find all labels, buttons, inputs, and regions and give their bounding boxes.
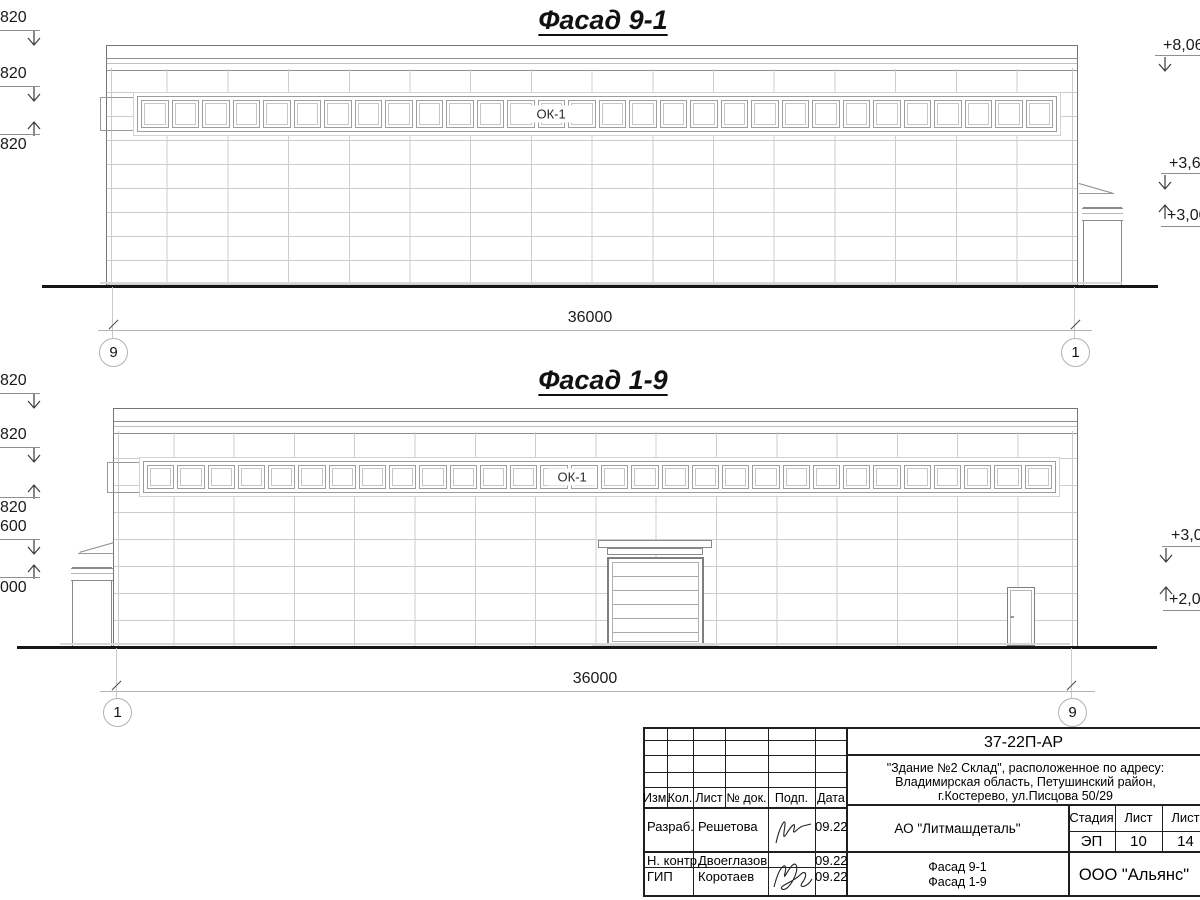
ground-line [42, 285, 1158, 288]
window-cell [965, 100, 993, 128]
tb-sheet-value: 10 [1115, 833, 1162, 850]
window-cell [601, 465, 628, 489]
elevation-arrow-down-icon [1158, 175, 1172, 191]
tb-name: Решетова [698, 820, 758, 835]
signature-scribble [770, 811, 815, 851]
signature-scribble [768, 853, 815, 895]
tb-col-list: Лист [693, 791, 725, 805]
annex-band [1082, 208, 1123, 221]
window-cell [629, 100, 657, 128]
elevation-mark-value: +3,0 [1171, 527, 1200, 545]
annex-canopy-base [1079, 193, 1114, 194]
dimension-line [100, 691, 1095, 692]
elevation-mark-shelf [1162, 546, 1200, 547]
base-apron-line [60, 643, 1070, 645]
window-cell [294, 100, 322, 128]
tb-address-line2: Владимирская область, Петушинский район, [853, 775, 1198, 789]
tb-sheet-name-line2: Фасад 1-9 [847, 875, 1068, 889]
window-cell [873, 465, 900, 489]
tb-line [643, 740, 847, 741]
band-cap-line [107, 462, 143, 463]
window-cell [480, 465, 507, 489]
tb-line [643, 755, 847, 756]
elevation-mark-value: +3,00 [1167, 207, 1200, 225]
tb-role: Н. контр. [647, 854, 701, 869]
window-band-label: ОК-1 [526, 106, 575, 123]
elevation-mark-value: 600 [0, 518, 27, 536]
facade-1-9-building [113, 408, 1078, 648]
elevation-mark-shelf [1161, 173, 1200, 174]
dimension-value: 36000 [490, 309, 690, 327]
window-cell [995, 100, 1023, 128]
window-cell [238, 465, 265, 489]
annex-canopy-slope [79, 542, 114, 553]
elevation-mark-shelf [0, 497, 40, 498]
drawing-canvas: Фасад 9-1 ОК-1 36000 9 1 820 820 820 +8, [0, 0, 1200, 900]
tb-sheet-name-line1: Фасад 9-1 [847, 860, 1068, 874]
window-cell [208, 465, 235, 489]
title-block: Изм. Кол. Лист № док. Подп. Дата Разраб.… [643, 727, 1200, 897]
tb-line [847, 754, 1200, 756]
window-cell [722, 465, 749, 489]
window-cell [141, 100, 169, 128]
base-apron-line [100, 282, 1122, 284]
window-band: ОК-1 [137, 96, 1057, 132]
gate-slats [612, 562, 699, 642]
elevation-mark-shelf [0, 577, 40, 578]
window-cell [783, 465, 810, 489]
tb-col-izm: Изм. [643, 791, 667, 805]
elevation-mark-value: 000 [0, 579, 27, 597]
tb-line [1068, 831, 1200, 832]
window-cell [721, 100, 749, 128]
tb-address-line1: "Здание №2 Склад", расположенное по адре… [853, 761, 1198, 775]
window-cell [843, 465, 870, 489]
gate-canopy-lower [607, 548, 703, 555]
tb-border [643, 727, 645, 897]
band-cap-line [107, 462, 108, 493]
window-cell [416, 100, 444, 128]
window-cell [692, 465, 719, 489]
window-cell [994, 465, 1021, 489]
window-cell [631, 465, 658, 489]
window-cell [477, 100, 505, 128]
window-cell [419, 465, 446, 489]
window-cell [355, 100, 383, 128]
annex-box [1083, 207, 1122, 287]
window-row [147, 465, 1052, 489]
elevation-arrow-down-icon [27, 448, 41, 464]
window-cell [752, 465, 779, 489]
elevation-mark-value: 820 [0, 136, 27, 154]
door-handle [1010, 616, 1014, 618]
window-cell [843, 100, 871, 128]
window-cell [263, 100, 291, 128]
elevation-mark-value: 820 [0, 426, 27, 444]
window-cell [964, 465, 991, 489]
window-cell [904, 100, 932, 128]
tb-date: 09.22 [815, 854, 847, 869]
annex-band [71, 568, 113, 581]
window-cell [662, 465, 689, 489]
window-cell [329, 465, 356, 489]
window-row [141, 100, 1053, 128]
elevation-mark-value: 820 [0, 9, 27, 27]
tb-client: АО "Литмашдеталь" [847, 821, 1068, 837]
window-cell [324, 100, 352, 128]
window-cell [177, 465, 204, 489]
window-cell [660, 100, 688, 128]
elevation-mark-value: 820 [0, 372, 27, 390]
tb-border [643, 727, 1200, 729]
window-cell [172, 100, 200, 128]
tb-date: 09.22 [815, 870, 847, 885]
elevation-mark-value: +3,60 [1169, 155, 1200, 173]
grid-axis-bubble: 1 [1061, 338, 1090, 367]
elevation-mark-shelf [1155, 55, 1200, 56]
tb-border [643, 895, 1200, 897]
elevation-arrow-down-icon [1158, 57, 1172, 73]
tb-sheets-value: 14 [1162, 833, 1200, 850]
window-cell [934, 465, 961, 489]
dimension-tick [109, 320, 119, 330]
dimension-line [98, 330, 1092, 331]
dimension-tick [1071, 320, 1081, 330]
window-cell [813, 465, 840, 489]
tb-stage-label: Стадия [1068, 811, 1115, 826]
tb-doc-code: 37-22П-АР [847, 734, 1200, 752]
window-cell [450, 465, 477, 489]
tb-date: 09.22 [815, 820, 847, 835]
band-cap-line [107, 492, 143, 493]
window-cell [510, 465, 537, 489]
tb-line [643, 787, 847, 788]
tb-role: Разраб. [647, 820, 694, 835]
gate-canopy-upper [598, 540, 712, 548]
window-cell [751, 100, 779, 128]
window-cell [385, 100, 413, 128]
elevation-mark-value: 820 [0, 499, 27, 517]
tb-line [693, 727, 694, 897]
window-band-label: ОК-1 [548, 469, 597, 486]
elevation-arrow-down-icon [27, 540, 41, 556]
elevation-mark-value: +2,00 [1169, 591, 1200, 609]
tb-line [643, 772, 847, 773]
tb-col-podp: Подп. [768, 791, 815, 805]
tb-col-data: Дата [815, 791, 847, 805]
window-cell [599, 100, 627, 128]
sectional-gate [607, 557, 704, 646]
tb-address-line3: г.Костерево, ул.Писцова 50/29 [853, 789, 1198, 803]
tb-line [643, 807, 847, 809]
window-band: ОК-1 [143, 461, 1056, 493]
window-cell [202, 100, 230, 128]
elevation-arrow-down-icon [1159, 548, 1173, 564]
window-cell [782, 100, 810, 128]
elevation-mark-shelf [0, 134, 40, 135]
window-cell [389, 465, 416, 489]
elevation-arrow-down-icon [27, 394, 41, 410]
grid-axis-bubble: 1 [103, 698, 132, 727]
annex-canopy-base [78, 553, 114, 554]
window-cell [1025, 465, 1052, 489]
annex-box [72, 567, 112, 648]
facade-1-9-title: Фасад 1-9 [453, 365, 753, 396]
grid-axis-bubble: 9 [99, 338, 128, 367]
facade-9-1-building [106, 45, 1078, 287]
band-cap-line [100, 130, 137, 131]
tb-role: ГИП [647, 870, 673, 885]
window-cell [904, 465, 931, 489]
window-cell [359, 465, 386, 489]
tb-name: Коротаев [698, 870, 754, 885]
window-cell [298, 465, 325, 489]
tb-col-ndok: № док. [725, 791, 768, 805]
tb-name: Двоеглазов [698, 854, 767, 869]
tb-company: ООО "Альянс" [1068, 866, 1200, 885]
window-cell [934, 100, 962, 128]
tb-stage-value: ЭП [1068, 833, 1115, 850]
ground-line [17, 646, 1157, 649]
elevation-mark-shelf [1163, 610, 1200, 611]
elevation-mark-shelf [1161, 226, 1200, 227]
window-cell [446, 100, 474, 128]
entry-door [1007, 587, 1035, 646]
window-cell [268, 465, 295, 489]
window-cell [873, 100, 901, 128]
tb-sheet-label: Лист [1115, 811, 1162, 826]
elevation-mark-value: +8,06 [1163, 37, 1200, 55]
window-cell [233, 100, 261, 128]
tb-sheets-label: Лист [1162, 811, 1200, 826]
window-cell [690, 100, 718, 128]
window-cell [812, 100, 840, 128]
tb-line [847, 804, 1200, 806]
elevation-mark-value: 820 [0, 65, 27, 83]
band-cap-line [100, 97, 137, 98]
dimension-value: 36000 [495, 670, 695, 688]
facade-9-1-title: Фасад 9-1 [453, 5, 753, 36]
elevation-arrow-down-icon [27, 31, 41, 47]
grid-axis-bubble: 9 [1058, 698, 1087, 727]
band-cap-line [100, 97, 101, 131]
elevation-arrow-down-icon [27, 87, 41, 103]
window-cell [1026, 100, 1054, 128]
window-cell [147, 465, 174, 489]
tb-col-kol: Кол. [667, 791, 693, 805]
